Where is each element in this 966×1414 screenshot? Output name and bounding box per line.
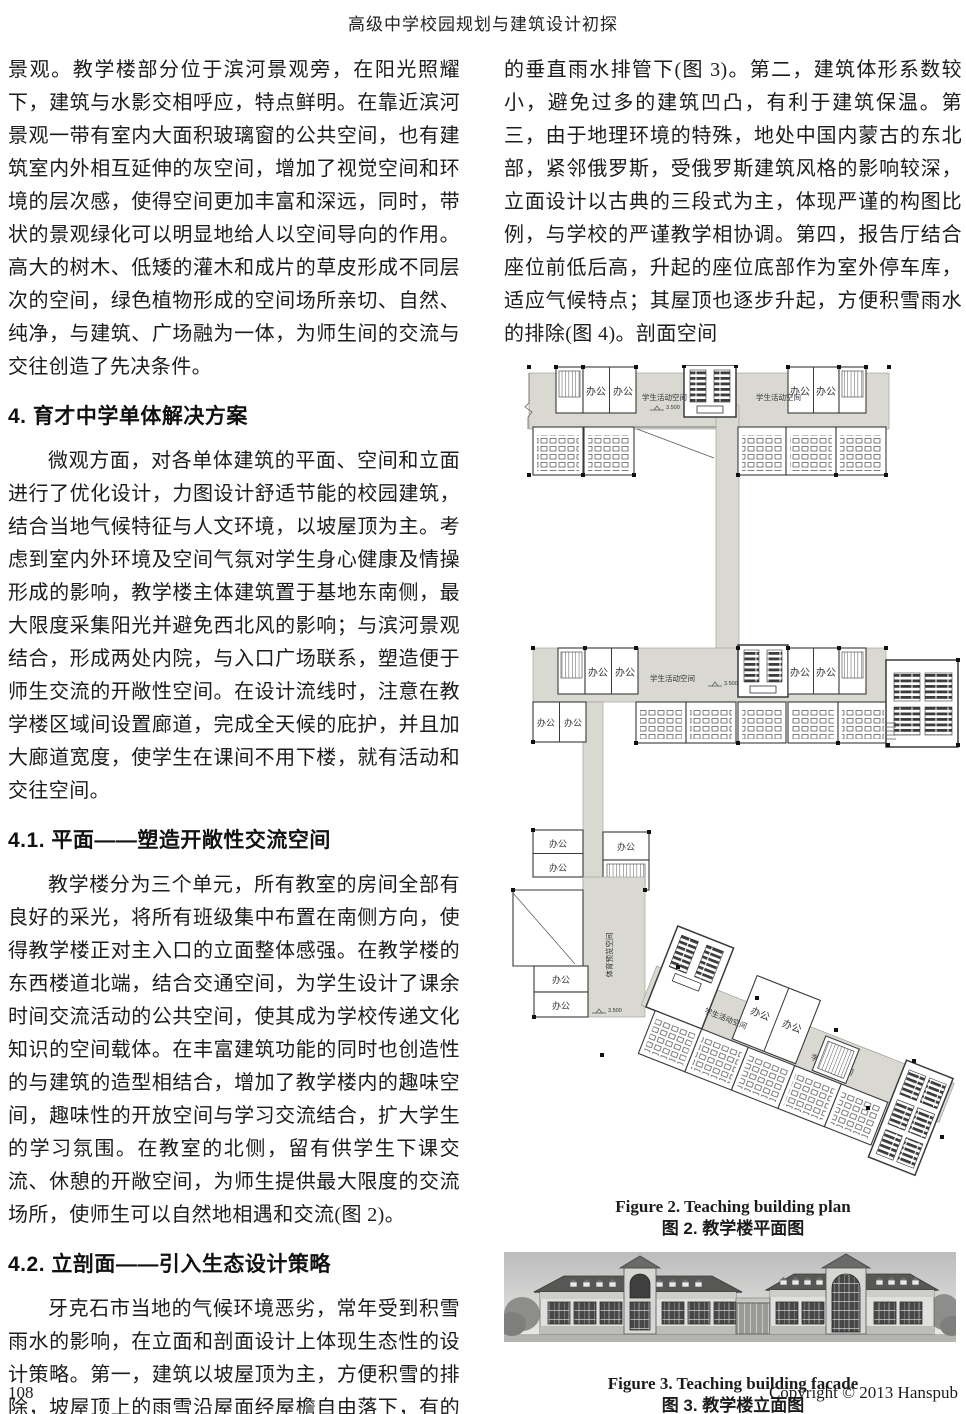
- teaching-building-plan-drawing: 办公 办公 办公 办公 学生活动空间: [504, 365, 962, 1177]
- label-office: 办公: [790, 666, 810, 679]
- right-column: 的垂直雨水排管下(图 3)。第二，建筑体形系数较小，避免过多的建筑凹凸，有利于建…: [504, 54, 962, 1414]
- section-4-1-heading: 4.1. 平面——塑造开敞性交流空间: [8, 824, 460, 857]
- label-office: 办公: [615, 666, 635, 679]
- label-office: 办公: [816, 666, 836, 679]
- label-office: 办公: [549, 862, 567, 873]
- plan-middle-wing: 办公 办公 办公 办公 学生活动空间: [533, 645, 958, 892]
- plan-top-wing: 办公 办公 办公 办公 学生活动空间: [525, 365, 889, 650]
- label-office: 办公: [613, 385, 633, 398]
- section-4-2-paragraph: 牙克石市当地的气候环境恶劣，常年受到积雪雨水的影响，在立面和剖面设计上体现生态性…: [8, 1293, 460, 1414]
- label-office: 办公: [588, 666, 608, 679]
- label-office: 办公: [816, 385, 836, 398]
- section-4-heading: 4. 育才中学单体解决方案: [8, 400, 460, 433]
- paragraph-continued-right: 的垂直雨水排管下(图 3)。第二，建筑体形系数较小，避免过多的建筑凹凸，有利于建…: [504, 54, 962, 351]
- label-office: 办公: [617, 841, 635, 852]
- label-gym-preview: 体育预览空间: [604, 933, 614, 978]
- label-level: 3.500: [608, 1008, 622, 1014]
- facade-bridge: [736, 1298, 770, 1334]
- section-4-1-paragraph: 教学楼分为三个单元，所有教室的房间全部有良好的采光，将所有班级集中布置在南侧方向…: [8, 869, 460, 1232]
- plan-diagonal-wing: 办公 办公 学生活动空间 学生活动空间: [620, 924, 962, 1176]
- page-header-title: 高级中学校园规划与建筑设计初探: [0, 10, 966, 35]
- section-4-2-heading: 4.2. 立剖面——引入生态设计策略: [8, 1248, 460, 1281]
- label-office: 办公: [549, 838, 567, 849]
- document-page: 高级中学校园规划与建筑设计初探 景观。教学楼部分位于滨河景观旁，在阳光照耀下，建…: [0, 0, 966, 1414]
- label-student-activity: 学生活动空间: [650, 673, 695, 683]
- teaching-building-facade-drawing: [504, 1252, 956, 1342]
- label-office: 办公: [564, 717, 582, 728]
- figure2-caption-zh: 图 2. 教学楼平面图: [504, 1217, 962, 1240]
- copyright-notice: Copyright © 2013 Hanspub: [769, 1383, 958, 1403]
- label-student-activity: 学生活动空间: [756, 392, 801, 402]
- label-office: 办公: [552, 974, 570, 985]
- label-office: 办公: [586, 385, 606, 398]
- label-level: 3.500: [666, 405, 680, 411]
- plan-lower-connector: 办公 办公 体育预览空间 3.500: [513, 877, 645, 1017]
- figure2-caption-en: Figure 2. Teaching building plan: [504, 1196, 962, 1217]
- classroom-row-top: [533, 427, 886, 475]
- classroom-row-middle: [636, 702, 888, 743]
- figure2-plan-image: 办公 办公 办公 办公 学生活动空间: [504, 365, 962, 1188]
- lecture-hall-right: [886, 660, 958, 747]
- label-office: 办公: [537, 717, 555, 728]
- page-number: 108: [8, 1383, 34, 1403]
- paragraph-continued: 景观。教学楼部分位于滨河景观旁，在阳光照耀下，建筑与水影交相呼应，特点鲜明。在靠…: [8, 54, 460, 384]
- left-column: 景观。教学楼部分位于滨河景观旁，在阳光照耀下，建筑与水影交相呼应，特点鲜明。在靠…: [8, 54, 460, 1414]
- section-4-paragraph: 微观方面，对各单体建筑的平面、空间和立面进行了优化设计，力图设计舒适节能的校园建…: [8, 445, 460, 808]
- label-office: 办公: [552, 1000, 570, 1011]
- figure2-caption: Figure 2. Teaching building plan 图 2. 教学…: [504, 1196, 962, 1240]
- figure3-facade-image: [504, 1252, 962, 1353]
- label-student-activity: 学生活动空间: [642, 392, 687, 402]
- label-level: 3.500: [724, 681, 738, 687]
